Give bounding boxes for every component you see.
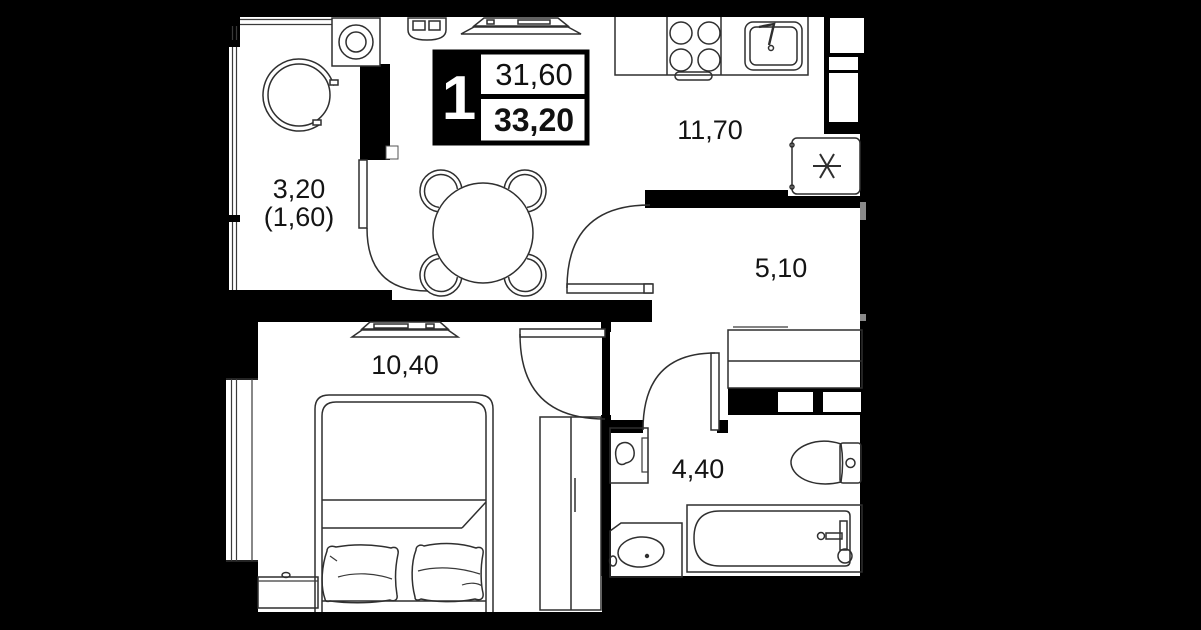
balcony-area-label: 3,20 (273, 174, 326, 204)
washing-machine-icon (332, 18, 380, 66)
balcony-door-jamb (386, 146, 398, 159)
kitchen-living-area-label: 11,70 (677, 115, 743, 145)
entrance-door-notch (860, 202, 866, 220)
entrance-door-notch (860, 314, 866, 321)
hallway-area-label: 5,10 (755, 253, 808, 283)
floor-plan: 3,20 (1,60) 11,70 5,10 10,40 4,40 1 31,6… (0, 0, 1201, 630)
unit-badge: 1 31,60 33,20 (435, 52, 587, 143)
badge-living-area: 31,60 (495, 57, 573, 92)
balcony-reduced-area-label: (1,60) (264, 202, 335, 232)
vent-shaft (778, 392, 813, 412)
badge-rooms-count: 1 (442, 64, 476, 133)
bedroom-window-zone (226, 378, 258, 562)
vent-shaft (829, 57, 858, 70)
hallway-floor (643, 200, 862, 420)
vent-shaft (829, 73, 858, 122)
balcony-glazing-top (240, 16, 334, 28)
balcony-glazing-left (229, 17, 240, 292)
badge-total-area: 33,20 (494, 102, 574, 138)
vent-shaft (823, 392, 861, 412)
bedroom-area-label: 10,40 (371, 350, 439, 380)
vent-shaft (830, 18, 864, 53)
bathroom-area-label: 4,40 (672, 454, 725, 484)
